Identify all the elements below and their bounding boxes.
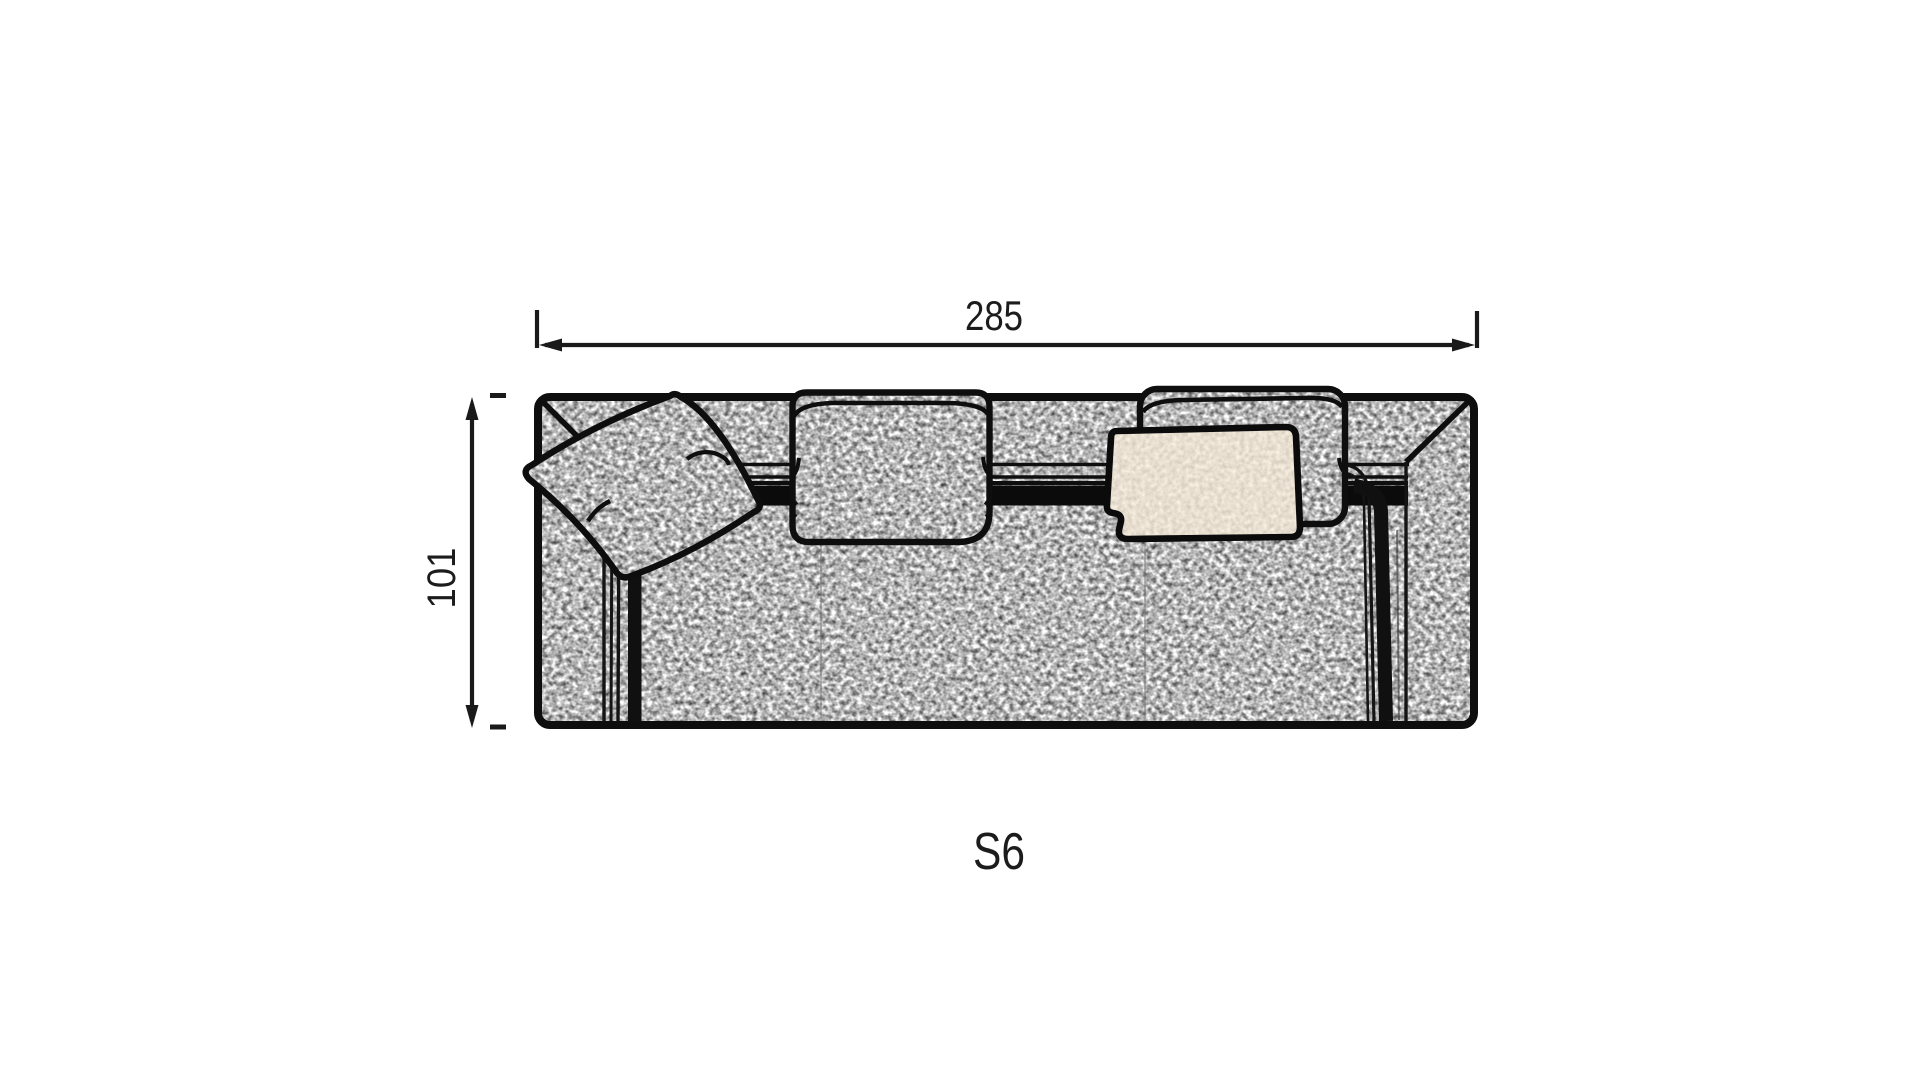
svg-text:101: 101	[420, 548, 464, 609]
svg-text:S6: S6	[973, 823, 1025, 881]
svg-text:285: 285	[965, 292, 1023, 339]
